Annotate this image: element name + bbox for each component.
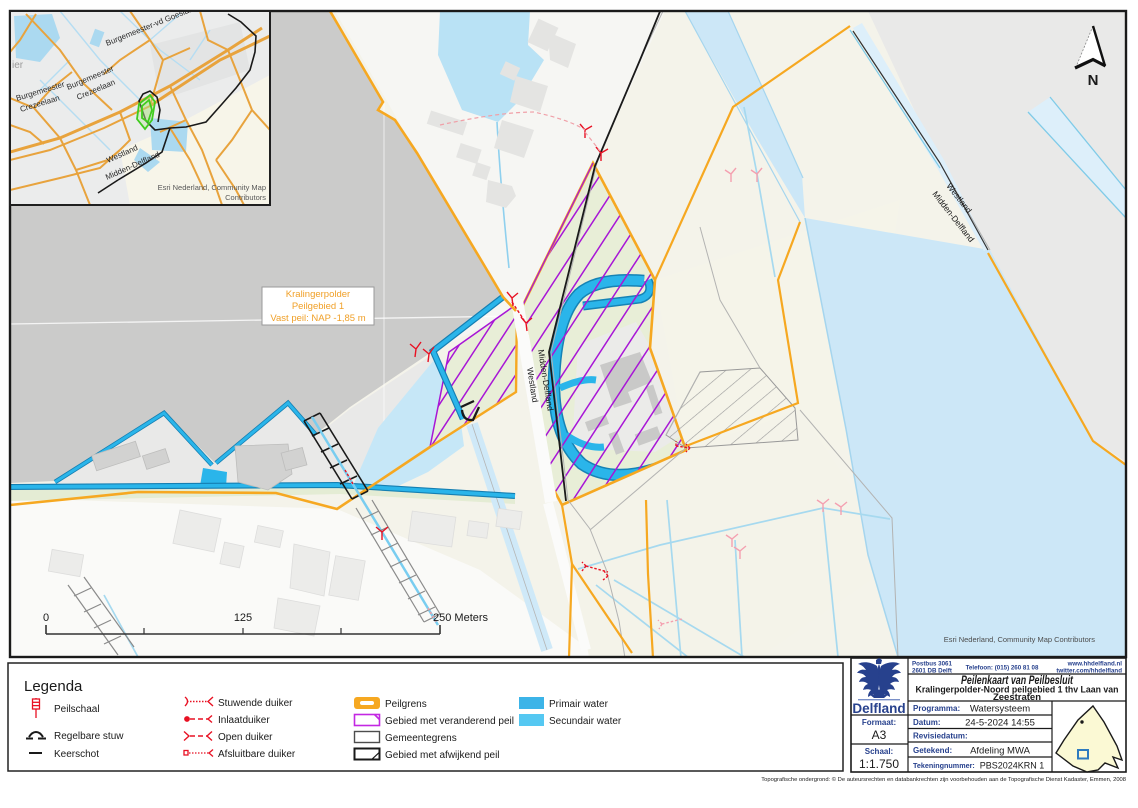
svg-text:1:1.750: 1:1.750 bbox=[859, 757, 899, 771]
svg-text:Esri Nederland, Community Map: Esri Nederland, Community Map Contributo… bbox=[944, 635, 1096, 644]
svg-text:N: N bbox=[1088, 72, 1099, 89]
svg-text:125: 125 bbox=[234, 612, 252, 624]
svg-text:Formaat:: Formaat: bbox=[862, 718, 896, 727]
svg-text:Zeestraten: Zeestraten bbox=[993, 692, 1041, 703]
svg-text:Watersysteem: Watersysteem bbox=[970, 704, 1030, 715]
svg-text:Open duiker: Open duiker bbox=[218, 732, 273, 743]
svg-text:Inlaatduiker: Inlaatduiker bbox=[218, 715, 270, 726]
svg-text:Schaal:: Schaal: bbox=[865, 747, 893, 756]
svg-text:Tekeningnummer:: Tekeningnummer: bbox=[913, 761, 975, 770]
svg-text:Revisiedatum:: Revisiedatum: bbox=[913, 732, 968, 741]
svg-text:Regelbare stuw: Regelbare stuw bbox=[54, 731, 124, 742]
svg-text:Topografische ondergrond: © D: Topografische ondergrond: © De auteursre… bbox=[761, 776, 1126, 783]
svg-text:Peilschaal: Peilschaal bbox=[54, 704, 100, 715]
svg-text:Stuwende duiker: Stuwende duiker bbox=[218, 698, 293, 709]
svg-text:Keerschot: Keerschot bbox=[54, 749, 99, 760]
svg-text:PBS2024KRN 1: PBS2024KRN 1 bbox=[980, 761, 1045, 771]
svg-text:Peilgebied 1: Peilgebied 1 bbox=[292, 301, 344, 312]
svg-text:Datum:: Datum: bbox=[913, 718, 941, 727]
svg-text:Vast peil: NAP -1,85 m: Vast peil: NAP -1,85 m bbox=[270, 313, 365, 324]
svg-text:Delfland: Delfland bbox=[852, 701, 905, 716]
svg-text:Telefoon: (015) 260 81 08: Telefoon: (015) 260 81 08 bbox=[966, 665, 1039, 672]
svg-text:Programma:: Programma: bbox=[913, 704, 960, 713]
svg-text:Postbus 3061: Postbus 3061 bbox=[912, 661, 952, 668]
svg-text:Afdeling MWA: Afdeling MWA bbox=[970, 746, 1030, 757]
svg-text:Primair water: Primair water bbox=[549, 699, 609, 710]
svg-text:Gemeentegrens: Gemeentegrens bbox=[385, 733, 457, 744]
svg-text:A3: A3 bbox=[872, 728, 887, 742]
svg-text:Secundair water: Secundair water bbox=[549, 716, 622, 727]
svg-text:Legenda: Legenda bbox=[24, 678, 83, 695]
svg-text:www.hhdelfland.nl: www.hhdelfland.nl bbox=[1067, 661, 1123, 668]
svg-text:Afsluitbare duiker: Afsluitbare duiker bbox=[218, 749, 296, 760]
svg-text:Gebied met veranderend peil: Gebied met veranderend peil bbox=[385, 716, 514, 727]
svg-text:0: 0 bbox=[43, 612, 49, 624]
svg-text:Gebied met afwijkend peil: Gebied met afwijkend peil bbox=[385, 750, 500, 761]
svg-text:Kralingerpolder: Kralingerpolder bbox=[286, 289, 350, 300]
svg-text:2601 DB Delft: 2601 DB Delft bbox=[912, 668, 952, 675]
svg-text:ier: ier bbox=[12, 60, 24, 71]
svg-text:Contributors: Contributors bbox=[225, 193, 266, 202]
svg-text:24-5-2024 14:55: 24-5-2024 14:55 bbox=[965, 718, 1035, 729]
svg-text:250 Meters: 250 Meters bbox=[433, 612, 489, 624]
svg-text:Getekend:: Getekend: bbox=[913, 746, 952, 755]
svg-text:Esri Nederland, Community Map: Esri Nederland, Community Map bbox=[158, 183, 266, 192]
svg-text:Peilgrens: Peilgrens bbox=[385, 699, 427, 710]
svg-text:twitter.com/hhdelfland: twitter.com/hhdelfland bbox=[1056, 668, 1122, 675]
